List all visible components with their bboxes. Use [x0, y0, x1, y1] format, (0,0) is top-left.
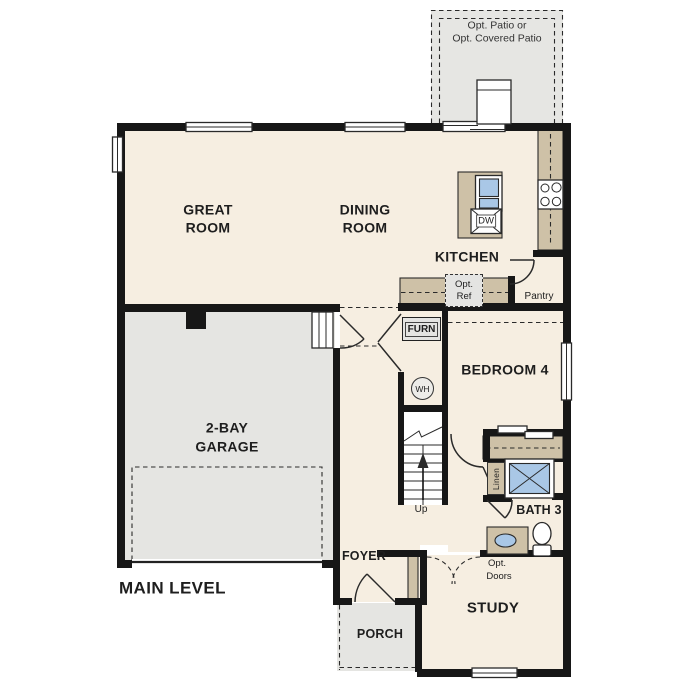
opt-doors-line1: Opt. [488, 558, 506, 570]
vanity-sink [487, 527, 528, 554]
porch-label: PORCH [357, 627, 403, 643]
opt-ref-line1: Opt. [455, 279, 473, 291]
linen-label: Linen [491, 467, 501, 489]
staircase [404, 412, 442, 505]
opt-ref-line2: Ref [457, 291, 472, 303]
dining-room-label-line1: DINING [340, 201, 391, 219]
foyer-closet [408, 556, 418, 601]
kitchen-label: KITCHEN [435, 248, 499, 266]
garage-label-line1: 2-BAY [206, 419, 248, 437]
garage-entry-steps [312, 312, 333, 348]
bedroom-closet [483, 436, 563, 459]
study-label: STUDY [467, 600, 519, 619]
patio-step [477, 80, 511, 124]
furnace-label: FURN [405, 322, 439, 337]
garage-label-line2: GARAGE [195, 438, 258, 456]
dishwasher-label: DW [476, 215, 496, 228]
stairs-up-label: Up [415, 504, 428, 517]
floor-plan-graphics [0, 0, 687, 687]
bedroom4-label: BEDROOM 4 [461, 361, 549, 379]
great-room-label-line1: GREAT [183, 201, 232, 219]
garage-door-panel [132, 559, 322, 569]
linen-closet: Linen [487, 462, 505, 495]
floor-plan: FURN WH Opt. Ref Linen DW Opt. Patio or … [0, 0, 687, 687]
water-heater-label: WH [415, 384, 429, 394]
plan-title: MAIN LEVEL [119, 577, 226, 598]
shower [505, 459, 554, 498]
patio-label-line2: Opt. Covered Patio [452, 32, 541, 45]
toilet-icon [533, 523, 551, 557]
water-heater: WH [411, 377, 434, 400]
opt-doors-line2: Doors [486, 571, 511, 583]
kitchen-sink [476, 176, 503, 212]
furnace-box: FURN [402, 317, 441, 341]
patio-label-line1: Opt. Patio or [468, 19, 527, 32]
foyer-label: FOYER [342, 549, 386, 565]
great-room-label-line2: ROOM [186, 219, 231, 237]
dining-room-label-line2: ROOM [343, 219, 388, 237]
bath3-label: BATH 3 [516, 503, 561, 519]
range-icon [538, 180, 563, 209]
optional-refrigerator-box: Opt. Ref [445, 274, 483, 307]
pantry-label: Pantry [525, 291, 554, 304]
